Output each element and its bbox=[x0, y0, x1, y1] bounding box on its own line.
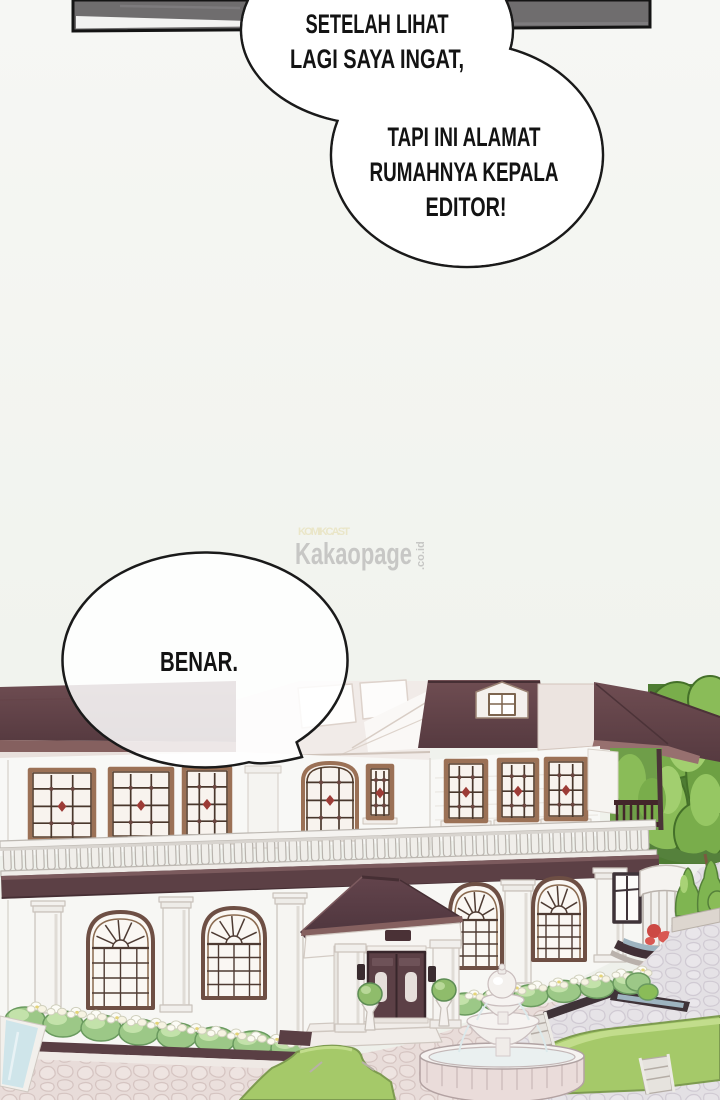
svg-text:TAPI INI ALAMAT: TAPI INI ALAMAT bbox=[388, 122, 541, 152]
svg-text:EDITOR!: EDITOR! bbox=[426, 192, 507, 222]
svg-text:SETELAH LIHAT: SETELAH LIHAT bbox=[306, 9, 449, 39]
svg-text:.co.id: .co.id bbox=[415, 541, 427, 570]
svg-text:Kakaopage: Kakaopage bbox=[295, 536, 412, 571]
svg-text:BENAR.: BENAR. bbox=[160, 646, 238, 677]
svg-text:RUMAHNYA KEPALA: RUMAHNYA KEPALA bbox=[370, 157, 559, 187]
svg-text:LAGI SAYA INGAT,: LAGI SAYA INGAT, bbox=[290, 44, 464, 74]
